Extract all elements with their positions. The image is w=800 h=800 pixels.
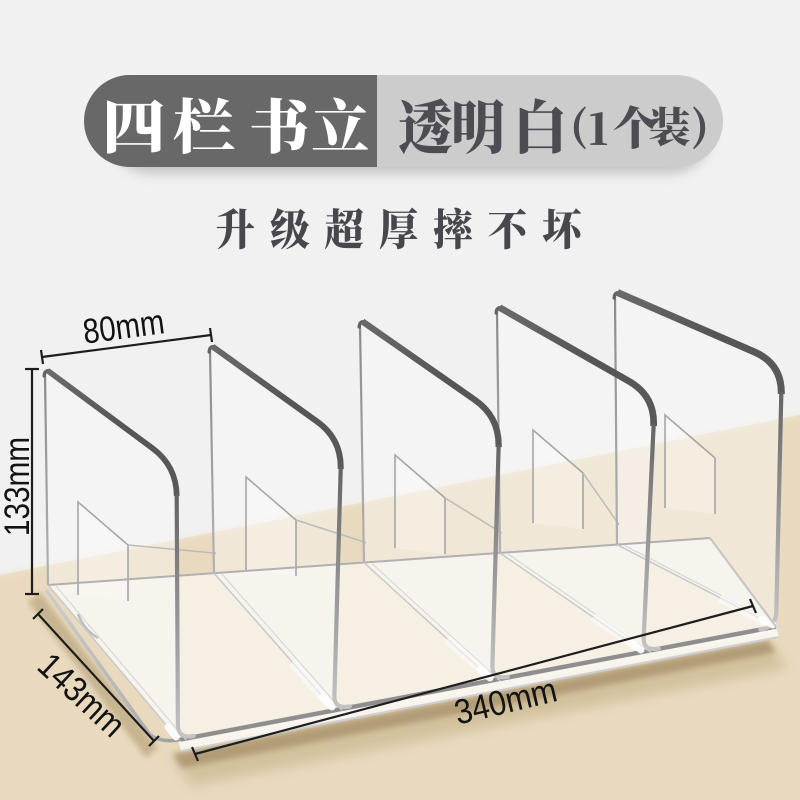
svg-text:133mm: 133mm (0, 437, 37, 536)
